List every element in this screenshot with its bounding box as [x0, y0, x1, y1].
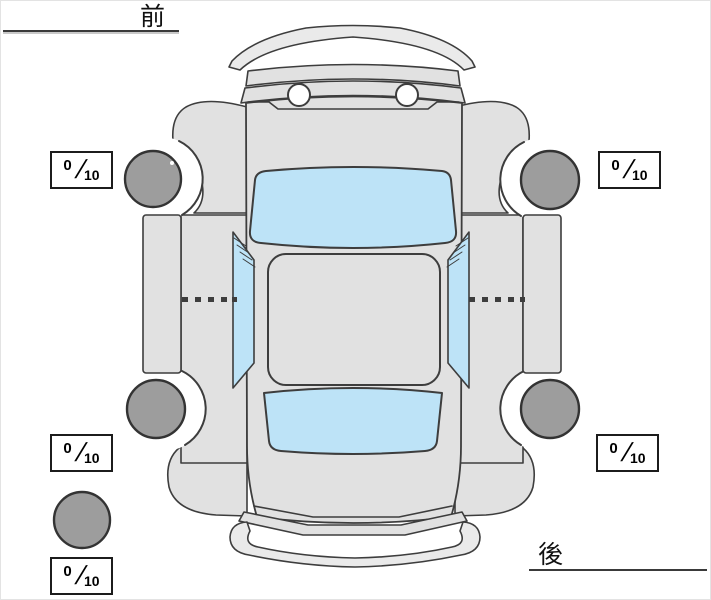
roof-panel	[268, 254, 440, 385]
score-max: 10	[630, 450, 646, 466]
car-outline-group	[54, 26, 584, 568]
spare-tire	[54, 492, 110, 548]
tire-score-front-left: 0 / 10	[50, 151, 113, 189]
front-right-tire	[521, 151, 579, 209]
front-left-tire	[125, 151, 181, 207]
seam-dot	[520, 297, 525, 302]
tire-highlight	[170, 161, 174, 165]
rear-label: 後	[538, 542, 563, 567]
left-side-sill	[143, 215, 181, 373]
score-max: 10	[84, 450, 100, 466]
windshield	[250, 167, 456, 248]
seam-dot	[195, 297, 201, 302]
score-max: 10	[632, 167, 648, 183]
right-side-window	[448, 232, 469, 388]
score-value: 0	[609, 440, 617, 457]
tire-score-rear-right: 0 / 10	[596, 434, 659, 472]
score-value: 0	[63, 157, 71, 174]
score-value: 0	[611, 157, 619, 174]
rear-right-tire	[521, 380, 579, 438]
front-label: 前	[140, 4, 165, 29]
score-value: 0	[63, 563, 71, 580]
score-value: 0	[63, 440, 71, 457]
front-underline	[3, 30, 179, 32]
front-bumper-outer	[229, 26, 475, 71]
seam-dot	[182, 297, 188, 302]
tire-score-spare: 0 / 10	[50, 557, 113, 595]
rear-window	[264, 388, 442, 454]
score-max: 10	[84, 573, 100, 589]
seam-dot	[469, 297, 475, 302]
seam-dot	[508, 297, 514, 302]
seam-dot	[482, 297, 488, 302]
rear-left-tire	[127, 380, 185, 438]
right-side-sill	[523, 215, 561, 373]
seam-dot	[208, 297, 214, 302]
tire-condition-diagram: 前 後 0 / 10 0 / 10 0 / 10 0 / 10 0 / 10	[0, 0, 711, 600]
left-side-window	[233, 232, 254, 388]
rear-underline	[529, 569, 707, 571]
seam-dot	[232, 297, 237, 302]
score-max: 10	[84, 167, 100, 183]
left-headlight	[288, 84, 310, 106]
right-headlight	[396, 84, 418, 106]
car-top-view	[1, 1, 711, 600]
seam-dot	[495, 297, 501, 302]
tire-score-rear-left: 0 / 10	[50, 434, 113, 472]
seam-dot	[221, 297, 227, 302]
tire-score-front-right: 0 / 10	[598, 151, 661, 189]
